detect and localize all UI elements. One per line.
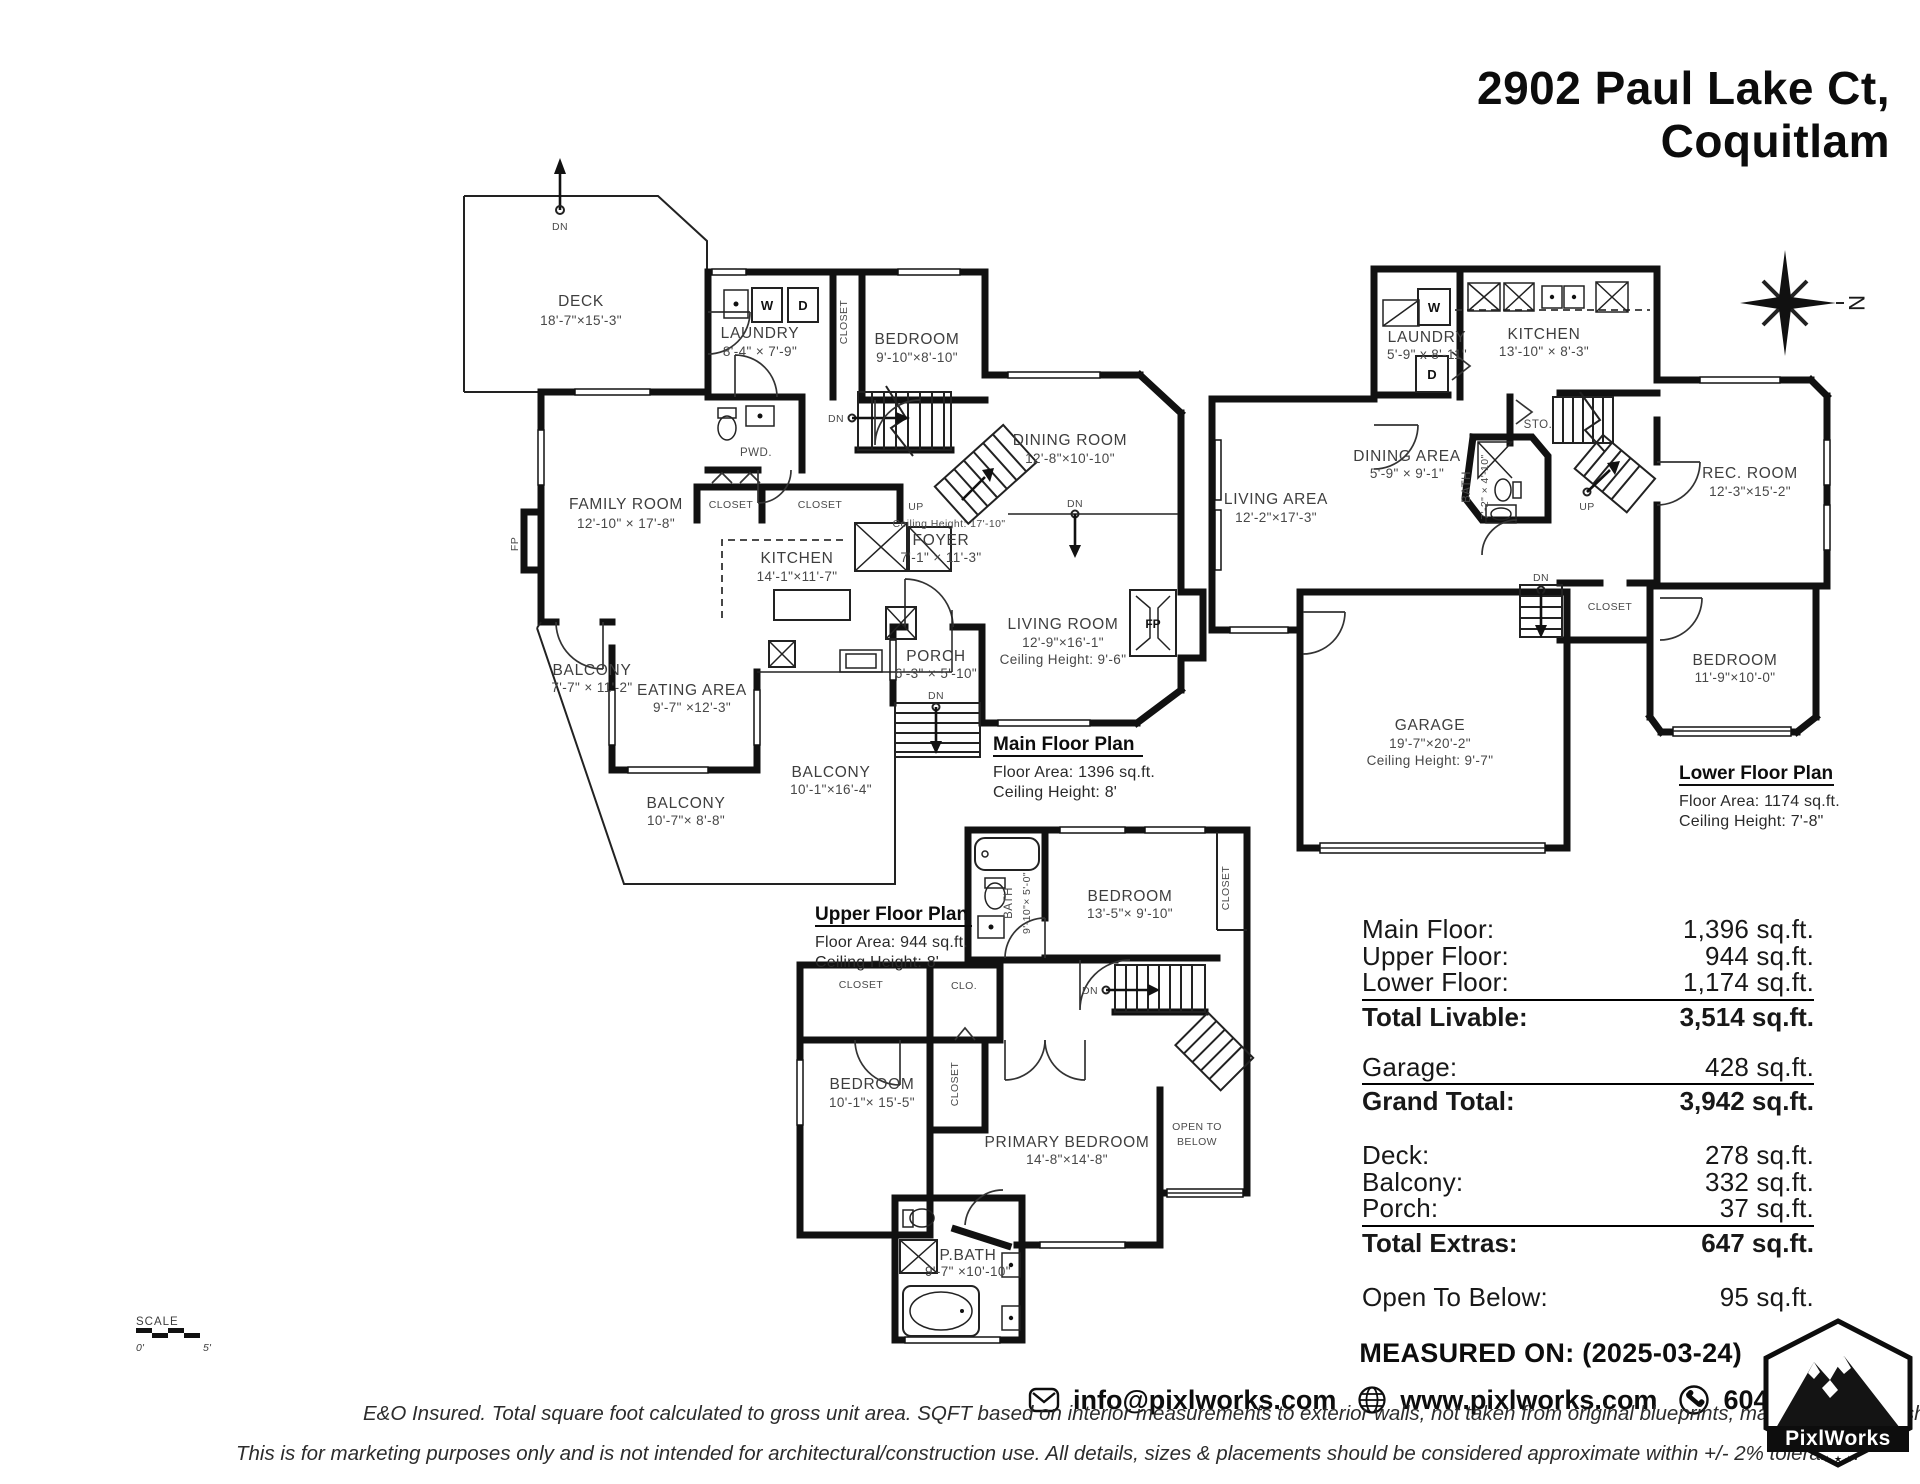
summary-value: 37 sq.ft. [1720, 1195, 1814, 1222]
room-dining-dim: 12'-8"×10'-10" [1025, 451, 1115, 466]
summary-value: 278 sq.ft. [1705, 1142, 1814, 1169]
closet2-label: CLOSET [798, 499, 843, 511]
main-dining-dn [1008, 511, 1178, 559]
scale-label: SCALE [136, 1316, 179, 1328]
summary-value: 95 sq.ft. [1720, 1284, 1814, 1311]
room-uf-pbath-dim: 9'-7" ×10'-10" [925, 1264, 1011, 1279]
summary-value: 647 sq.ft. [1701, 1229, 1814, 1257]
room-eating: EATING AREA [637, 682, 747, 699]
room-kitchen: KITCHEN [761, 550, 834, 567]
lf-washer-label: W [1428, 300, 1441, 315]
dining-dn-label: DN [1067, 498, 1083, 510]
summary-row: Garage:428 sq.ft. [1362, 1054, 1814, 1081]
room-uf-primary-dim: 14'-8"×14'-8" [1026, 1152, 1108, 1167]
fireplace-side-label: FP [509, 537, 521, 551]
room-uf-primary: PRIMARY BEDROOM [985, 1134, 1150, 1151]
room-family-dim: 12'-10" × 17'-8" [577, 516, 675, 531]
room-bedroom: BEDROOM [875, 331, 960, 348]
room-uf-bedroom2-dim: 10'-1"× 15'-5" [829, 1095, 915, 1110]
room-lf-bedroom-dim: 11'-9"×10'-0" [1695, 670, 1776, 685]
main-floor-area: Floor Area: 1396 sq.ft. [993, 764, 1155, 781]
summary-label: Deck: [1362, 1142, 1429, 1169]
summary-label: Garage: [1362, 1054, 1457, 1081]
lower-kitchen-fixtures [1455, 282, 1650, 312]
lower-floor-ceiling: Ceiling Height: 7'-8" [1679, 813, 1824, 830]
lower-floor-heading: Lower Floor Plan [1679, 763, 1833, 784]
room-lf-rec: REC. ROOM [1702, 465, 1798, 482]
main-floor-ceiling: Ceiling Height: 8' [993, 784, 1117, 801]
summary-value: 3,514 sq.ft. [1680, 1003, 1814, 1031]
room-lf-laundry: LAUNDRY [1388, 329, 1467, 346]
compass-north-label: N [1844, 295, 1869, 311]
closet1-label: CLOSET [709, 499, 754, 511]
room-dining: DINING ROOM [1013, 432, 1127, 449]
lf-up-label: UP [1579, 501, 1594, 513]
uf-closet-mid: CLOSET [949, 1062, 961, 1107]
summary-value: 944 sq.ft. [1705, 943, 1814, 970]
room-uf-bedroom1-dim: 13'-5"× 9'-10" [1087, 906, 1173, 921]
room-uf-bedroom1: BEDROOM [1088, 888, 1173, 905]
main-pwd-fixtures [718, 406, 774, 440]
main-stairs-up [849, 386, 1037, 524]
room-lf-living-dim: 12'-2"×17'-3" [1235, 510, 1317, 525]
room-uf-pbath: P.BATH [939, 1247, 996, 1264]
summary-label: Total Extras: [1362, 1229, 1518, 1257]
upper-floor-plan: Upper Floor Plan Floor Area: 944 sq.ft. … [790, 818, 1305, 1358]
lower-floor-area: Floor Area: 1174 sq.ft. [1679, 793, 1840, 810]
scale-from: 0' [136, 1342, 145, 1354]
room-pwd: PWD. [740, 447, 772, 459]
room-balcony3-dim: 10'-7"× 8'-8" [647, 813, 725, 828]
room-uf-bath-dim: 9'-10"× 5'-0" [1021, 872, 1033, 934]
room-lf-garage-ceiling: Ceiling Height: 9'-7" [1367, 753, 1494, 768]
summary-row: Main Floor:1,396 sq.ft. [1362, 916, 1814, 943]
room-lf-kitchen: KITCHEN [1508, 326, 1581, 343]
room-deck-dim: 18'-7"×15'-3" [540, 313, 622, 328]
main-floor-heading: Main Floor Plan [993, 734, 1134, 755]
dryer-label: D [798, 298, 807, 313]
room-uf-bedroom2: BEDROOM [830, 1076, 915, 1093]
uf-clo: CLO. [951, 980, 977, 992]
uf-dn-label: DN [1082, 985, 1098, 997]
room-lf-bath: BATH [1461, 471, 1473, 503]
main-deck-outline [464, 158, 707, 392]
summary-value: 3,942 sq.ft. [1680, 1087, 1814, 1115]
summary-label: Porch: [1362, 1195, 1438, 1222]
scale-bar-icon [136, 1328, 200, 1338]
room-laundry-dim: 8'-4" × 7'-9" [723, 344, 797, 359]
title-line2: Coquitlam [1477, 115, 1890, 168]
room-kitchen-dim: 14'-1"×11'-7" [757, 569, 838, 584]
summary-value: 428 sq.ft. [1705, 1054, 1814, 1081]
summary-label: Balcony: [1362, 1169, 1463, 1196]
room-living-dim: 12'-9"×16'-1" [1022, 635, 1104, 650]
summary-grand-total: Grand Total:3,942 sq.ft. [1362, 1083, 1814, 1115]
room-living: LIVING ROOM [1007, 616, 1118, 633]
uf-open-below-1: OPEN TO [1172, 1121, 1222, 1133]
room-lf-bedroom: BEDROOM [1693, 652, 1778, 669]
title-line1: 2902 Paul Lake Ct, [1477, 62, 1890, 115]
room-deck: DECK [558, 293, 604, 310]
room-balcony1: BALCONY [553, 662, 632, 679]
uf-closet-left: CLOSET [839, 979, 884, 991]
room-balcony2-dim: 10'-1"×16'-4" [790, 782, 872, 797]
compass-rose: N [1725, 243, 1875, 368]
room-lf-bath-dim: 7'-2" × 4'-10" [1479, 454, 1491, 519]
summary-label: Grand Total: [1362, 1087, 1515, 1115]
room-lf-kitchen-dim: 13'-10" × 8'-3" [1499, 344, 1589, 359]
summary-row: Lower Floor:1,174 sq.ft. [1362, 969, 1814, 996]
uf-closet-right: CLOSET [1220, 866, 1232, 911]
room-porch: PORCH [906, 648, 965, 665]
washer-label: W [761, 298, 774, 313]
stairs-dn-label: DN [828, 413, 844, 425]
stairs-up-label: UP [908, 501, 923, 513]
main-stairs-porch [895, 703, 980, 757]
room-lf-dining-dim: 5'-9" × 9'-1" [1370, 466, 1444, 481]
summary-row: Balcony:332 sq.ft. [1362, 1169, 1814, 1196]
room-lf-sto: STO. [1524, 419, 1553, 431]
summary-row-open-below: Open To Below:95 sq.ft. [1362, 1284, 1814, 1311]
fireplace-label: FP [1145, 617, 1160, 631]
summary-value: 1,396 sq.ft. [1683, 916, 1814, 943]
room-lf-laundry-dim: 5'-9" x 8'-11" [1387, 347, 1467, 362]
foyer-ceiling-label: Ceiling Height: 17'-10" [893, 518, 1006, 530]
lf-dn-label: DN [1533, 572, 1549, 584]
room-lf-dining: DINING AREA [1353, 448, 1461, 465]
summary-label: Main Floor: [1362, 916, 1494, 943]
summary-label: Upper Floor: [1362, 943, 1509, 970]
scale-bar: SCALE 0' 5' [103, 1314, 243, 1359]
room-porch-dim: 6'-3" × 5'-10" [895, 666, 977, 681]
room-bedroom-dim: 9'-10"×8'-10" [876, 350, 958, 365]
lower-stairs-up [1553, 392, 1655, 512]
upper-stairs-dn [1103, 965, 1254, 1090]
room-foyer-dim: 7'-1" × 11'-3" [900, 550, 981, 565]
upper-floor-heading: Upper Floor Plan [815, 904, 968, 925]
room-lf-garage-dim: 19'-7"×20'-2" [1389, 736, 1471, 751]
upper-floor-ceiling: Ceiling Height: 8' [815, 954, 939, 971]
summary-row: Deck:278 sq.ft. [1362, 1142, 1814, 1169]
summary-value: 332 sq.ft. [1705, 1169, 1814, 1196]
scale-to: 5' [203, 1342, 212, 1354]
summary-row: Porch:37 sq.ft. [1362, 1195, 1814, 1222]
room-lf-living: LIVING AREA [1224, 491, 1328, 508]
lf-dryer-label: D [1427, 367, 1436, 382]
deck-dn-label: DN [552, 221, 568, 233]
room-balcony1-dim: 7'-7" × 11'-2" [551, 680, 632, 695]
logo-stars-icon: ★ ★ ★ [1823, 1454, 1852, 1464]
summary-value: 1,174 sq.ft. [1683, 969, 1814, 996]
room-lf-garage: GARAGE [1395, 717, 1466, 734]
company-logo: PixlWorks ★ ★ ★ [1756, 1318, 1920, 1468]
summary-label: Lower Floor: [1362, 969, 1509, 996]
room-balcony2: BALCONY [792, 764, 871, 781]
room-balcony3: BALCONY [647, 795, 726, 812]
room-family: FAMILY ROOM [569, 496, 683, 513]
disclaimer-line2: This is for marketing purposes only and … [236, 1442, 1860, 1466]
area-summary-table: Main Floor:1,396 sq.ft. Upper Floor:944 … [1362, 916, 1814, 1310]
summary-row: Upper Floor:944 sq.ft. [1362, 943, 1814, 970]
page-title: 2902 Paul Lake Ct, Coquitlam [1477, 62, 1890, 168]
logo-brand: PixlWorks [1785, 1427, 1891, 1450]
lf-closet-label: CLOSET [1588, 601, 1633, 613]
summary-total-livable: Total Livable:3,514 sq.ft. [1362, 999, 1814, 1031]
measured-on: MEASURED ON: (2025-03-24) [1359, 1338, 1742, 1369]
room-laundry: LAUNDRY [721, 325, 800, 342]
compass-icon: N [1740, 250, 1869, 356]
summary-label: Total Livable: [1362, 1003, 1528, 1031]
room-eating-dim: 9'-7" ×12'-3" [653, 700, 731, 715]
room-foyer: FOYER [913, 532, 970, 549]
closet-label-v: CLOSET [838, 300, 850, 345]
summary-total-extras: Total Extras:647 sq.ft. [1362, 1225, 1814, 1257]
room-living-ceiling: Ceiling Height: 9'-6" [1000, 652, 1127, 667]
disclaimer-line1: E&O Insured. Total square foot calculate… [363, 1402, 1920, 1426]
uf-open-below-2: BELOW [1177, 1136, 1217, 1148]
upper-floor-area: Floor Area: 944 sq.ft. [815, 934, 968, 951]
summary-label: Open To Below: [1362, 1284, 1548, 1311]
room-lf-rec-dim: 12'-3"×15'-2" [1709, 484, 1791, 499]
porch-dn-label: DN [928, 690, 944, 702]
floorplan-page: 2902 Paul Lake Ct, Coquitlam [0, 0, 1920, 1484]
main-floor-plan: DECK 18'-7"×15'-3" DN LAUNDRY 8'-4" × 7'… [370, 140, 1210, 920]
room-uf-bath: BATH [1003, 887, 1015, 919]
